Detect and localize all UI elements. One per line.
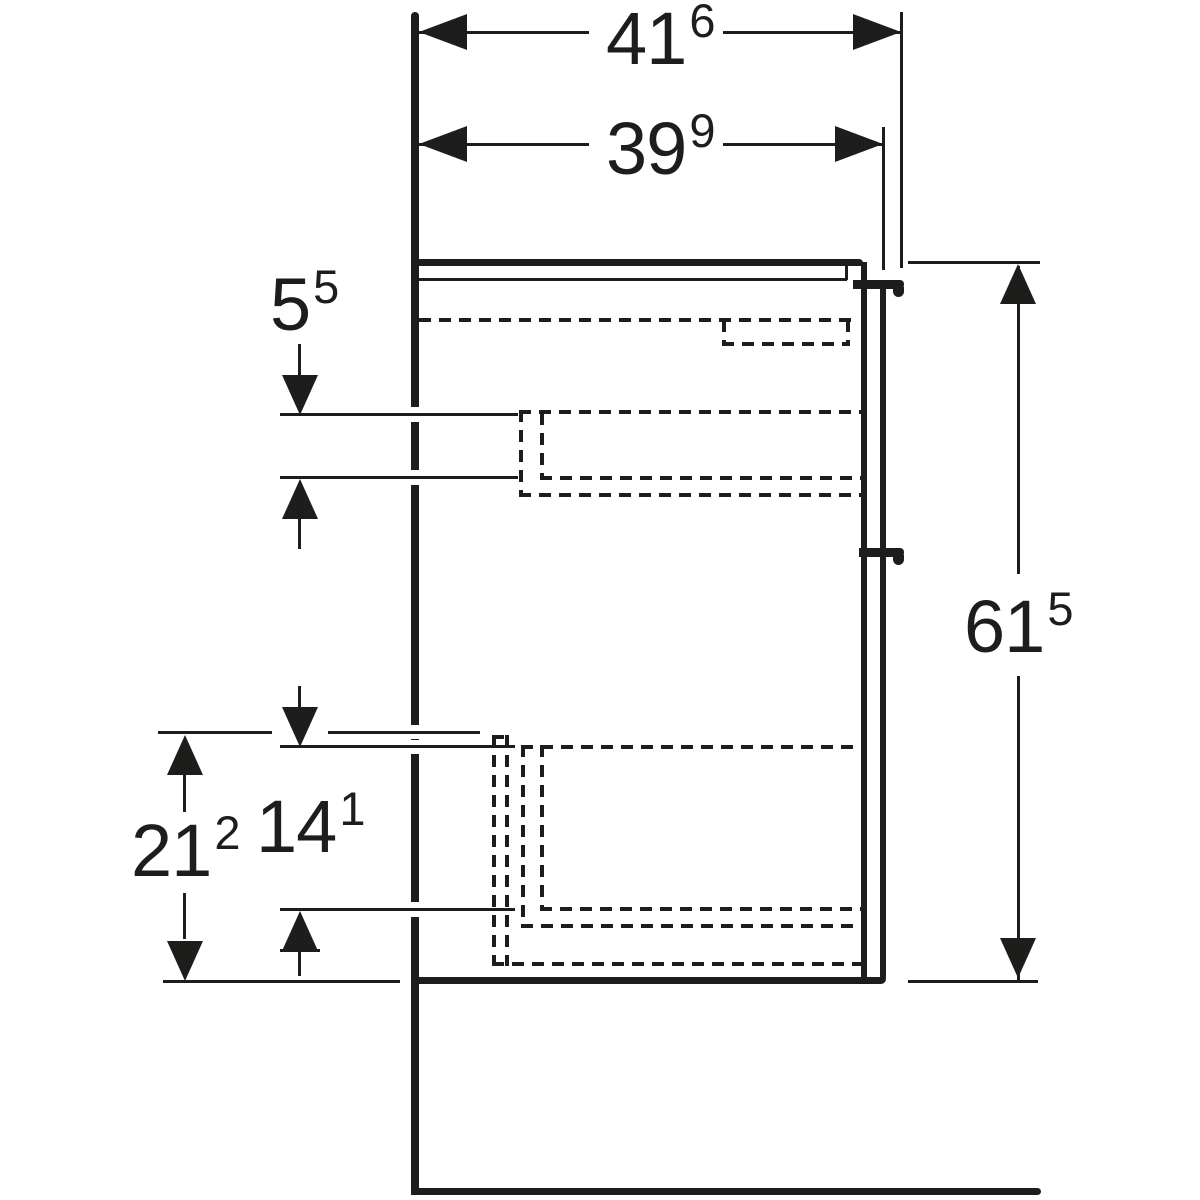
dim-height-line [1017, 266, 1020, 574]
dashed-top-interior-line [419, 318, 857, 322]
dim-lower-top-line [158, 731, 272, 734]
floor-line [411, 1188, 1041, 1195]
cabinet-front-outer-line [880, 281, 886, 981]
dim-label-lower-front: 212 [123, 812, 247, 890]
dashed-top-drawer-box-back [540, 413, 544, 480]
dim-label-depth-body: 399 [598, 110, 722, 188]
dim-arrow-up-icon [282, 911, 318, 951]
dashed-top-drawer-box-bottom [540, 476, 861, 480]
dim-sup: 6 [689, 0, 714, 44]
dim-label-top-inset: 55 [262, 266, 346, 344]
dim-arrow-right-icon [853, 14, 901, 50]
cabinet-bottom-edge [415, 977, 886, 984]
dim-sup: 2 [214, 809, 239, 856]
bottom-drawer-handle-hook [893, 555, 904, 565]
dashed-bottom-drawer-mid-bottom [521, 924, 861, 928]
cabinet-front-inner-line [861, 262, 867, 983]
dim-value: 5 [270, 268, 310, 342]
dim-value: 61 [964, 590, 1044, 664]
cabinet-top-step [845, 263, 848, 280]
dim-value: 21 [131, 814, 211, 888]
top-drawer-handle-hook [893, 287, 904, 297]
dashed-bottom-drawer-box-back-b [540, 745, 544, 911]
dashed-recess-bottom [722, 342, 850, 346]
dim-height-bottom-pointer [908, 980, 1038, 983]
dim-sup: 5 [313, 263, 338, 310]
dim-sup: 9 [689, 107, 714, 154]
cabinet-top-underside [417, 278, 847, 281]
dashed-top-drawer-top [519, 410, 861, 414]
dim-sup: 1 [339, 785, 364, 832]
dim-arrow-up-icon [282, 479, 318, 519]
dashed-recess-right [846, 320, 850, 346]
dim-value: 14 [256, 790, 336, 864]
technical-drawing-canvas: 416 399 615 55 212 141 [0, 0, 1200, 1200]
dashed-top-drawer-bottom [519, 493, 861, 497]
dim-arrow-right-icon [835, 126, 883, 162]
dim-arrow-stem [183, 893, 186, 939]
dim-height-line [1017, 676, 1020, 980]
dashed-top-drawer-front [519, 410, 523, 497]
dashed-bottom-drawer-front-top [492, 735, 509, 739]
dim-arrow-stem [298, 517, 301, 549]
dim-arrow-left-icon [419, 126, 467, 162]
dim-value: 39 [606, 112, 686, 186]
extension-line-overall-depth [900, 12, 903, 268]
dim-arrow-down-icon [282, 707, 318, 747]
dim-arrow-up-icon [167, 735, 203, 775]
dim-arrow-stem [298, 952, 301, 976]
dim-arrow-down-icon [282, 375, 318, 415]
dashed-bottom-drawer-front-a [492, 735, 496, 966]
dashed-bottom-drawer-outer-bottom [492, 962, 861, 966]
dim-arrow-left-icon [419, 14, 467, 50]
dim-sup: 5 [1047, 585, 1072, 632]
dim-label-lower-inner: 141 [248, 788, 372, 866]
dashed-bottom-drawer-front-b [505, 735, 509, 966]
dim-lower-top-line [328, 731, 480, 734]
dim-value: 41 [606, 2, 686, 76]
dim-arrow-up-icon [1000, 264, 1036, 304]
wall-line [411, 12, 419, 1193]
dashed-bottom-drawer-box-back-a [521, 745, 525, 928]
dashed-bottom-drawer-box-bottom [540, 907, 861, 911]
dim-arrow-down-icon [1000, 938, 1036, 978]
dim-label-depth-overall: 416 [598, 0, 722, 78]
dashed-bottom-drawer-top [521, 745, 861, 749]
cabinet-top-edge [415, 259, 863, 266]
dim-arrow-down-icon [167, 941, 203, 981]
dim-label-height: 615 [956, 588, 1080, 666]
